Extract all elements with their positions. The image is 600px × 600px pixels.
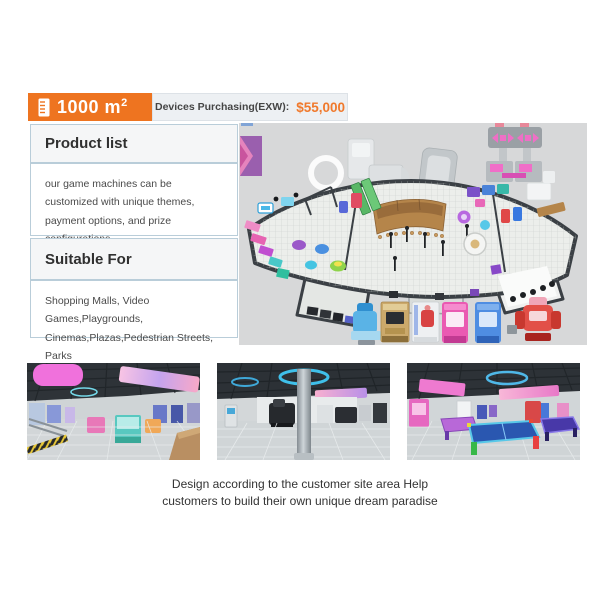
area-value: 1000 m2 bbox=[57, 97, 128, 118]
pink-display-panel bbox=[240, 136, 262, 176]
vr-machine-left bbox=[269, 399, 295, 427]
tan-cabinet bbox=[381, 302, 409, 342]
devices-price: $55,000 bbox=[296, 100, 345, 115]
area-badge: 1000 m2 bbox=[28, 93, 152, 121]
devices-price-box: Devices Purchasing(EXW): $55,000 bbox=[152, 93, 348, 121]
suitable-for-header: Suitable For bbox=[30, 238, 238, 280]
arcade-photo-1 bbox=[27, 363, 200, 460]
product-page: 1000 m2 Devices Purchasing(EXW): $55,000… bbox=[0, 0, 600, 600]
ruler-icon bbox=[38, 98, 50, 117]
suitable-for-title: Suitable For bbox=[45, 251, 132, 268]
product-list-header: Product list bbox=[30, 124, 238, 163]
arcade-photo-3-illustration bbox=[407, 363, 580, 460]
floorplan-illustration bbox=[239, 123, 587, 345]
caption-line-1: Design according to the customer site ar… bbox=[0, 476, 600, 493]
devices-label: Devices Purchasing(EXW): bbox=[155, 101, 289, 113]
caption-line-2: customers to build their own unique drea… bbox=[0, 493, 600, 510]
white-cabinet bbox=[412, 302, 439, 342]
arcade-photo-2 bbox=[217, 363, 390, 460]
magenta-cabinet bbox=[442, 302, 468, 343]
arcade-photo-1-illustration bbox=[27, 363, 200, 460]
caption: Design according to the customer site ar… bbox=[0, 476, 600, 510]
product-list-title: Product list bbox=[45, 135, 128, 152]
arcade-photo-2-illustration bbox=[217, 363, 390, 460]
floorplan-render bbox=[239, 123, 587, 345]
suitable-for-body: Shopping Malls, Video Games,Playgrounds,… bbox=[30, 280, 238, 338]
central-column bbox=[297, 369, 311, 460]
product-list-body: our game machines can be customized with… bbox=[30, 163, 238, 236]
arcade-photo-3 bbox=[407, 363, 580, 460]
blue-cabinet bbox=[475, 302, 501, 343]
